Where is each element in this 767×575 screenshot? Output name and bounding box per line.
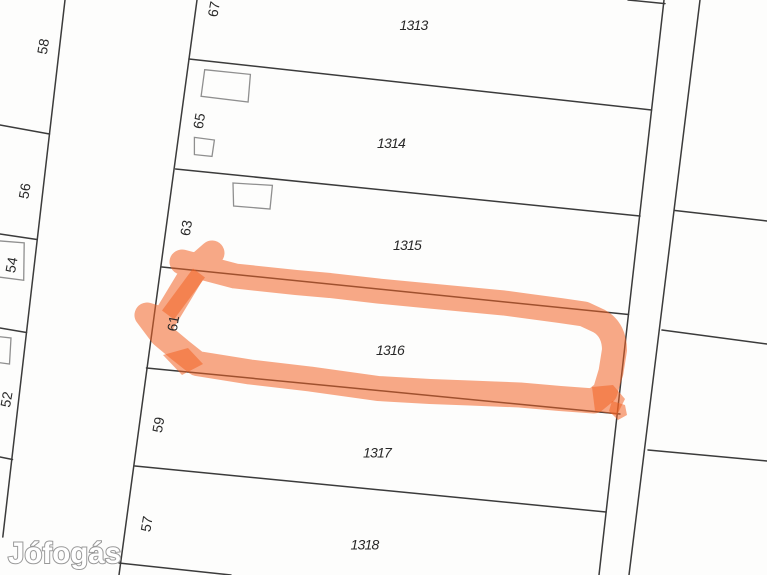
svg-text:57: 57 <box>137 515 155 533</box>
svg-text:58: 58 <box>34 37 52 55</box>
svg-text:1315: 1315 <box>393 237 422 253</box>
svg-text:63: 63 <box>177 219 195 237</box>
svg-text:Jófogás: Jófogás <box>8 537 121 570</box>
svg-text:1318: 1318 <box>351 537 380 553</box>
svg-text:65: 65 <box>190 112 208 130</box>
svg-text:56: 56 <box>15 182 33 200</box>
svg-text:67: 67 <box>204 0 222 18</box>
svg-text:54: 54 <box>2 256 20 274</box>
svg-text:1314: 1314 <box>377 135 406 151</box>
svg-text:61: 61 <box>164 314 182 332</box>
svg-text:1317: 1317 <box>363 445 393 461</box>
svg-text:1313: 1313 <box>400 17 429 33</box>
svg-text:52: 52 <box>0 390 16 408</box>
svg-text:1316: 1316 <box>376 342 405 358</box>
svg-text:59: 59 <box>149 416 167 434</box>
